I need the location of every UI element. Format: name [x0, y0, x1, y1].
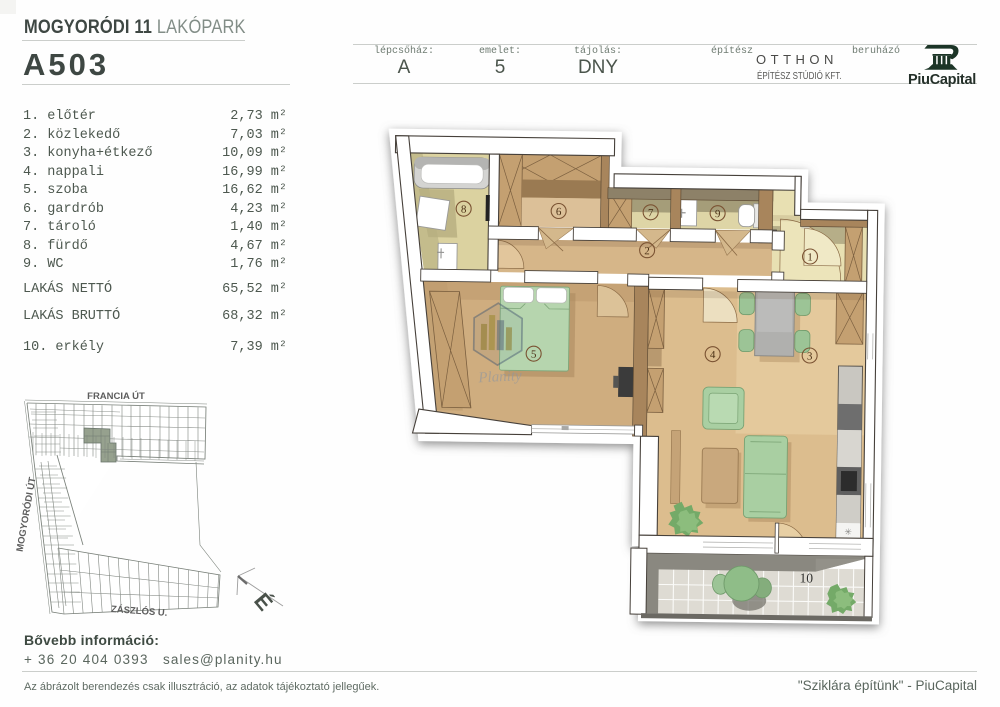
svg-text:10: 10: [799, 570, 813, 585]
svg-text:7: 7: [648, 207, 654, 219]
svg-text:8: 8: [461, 204, 467, 216]
svg-text:6: 6: [556, 206, 562, 218]
svg-text:Planity: Planity: [477, 368, 522, 386]
svg-text:9: 9: [715, 208, 721, 220]
svg-text:✳: ✳: [844, 527, 852, 537]
svg-text:4: 4: [710, 349, 716, 361]
svg-text:2: 2: [644, 245, 650, 257]
svg-text:3: 3: [807, 350, 813, 362]
svg-text:5: 5: [531, 349, 537, 361]
svg-text:1: 1: [807, 251, 813, 263]
